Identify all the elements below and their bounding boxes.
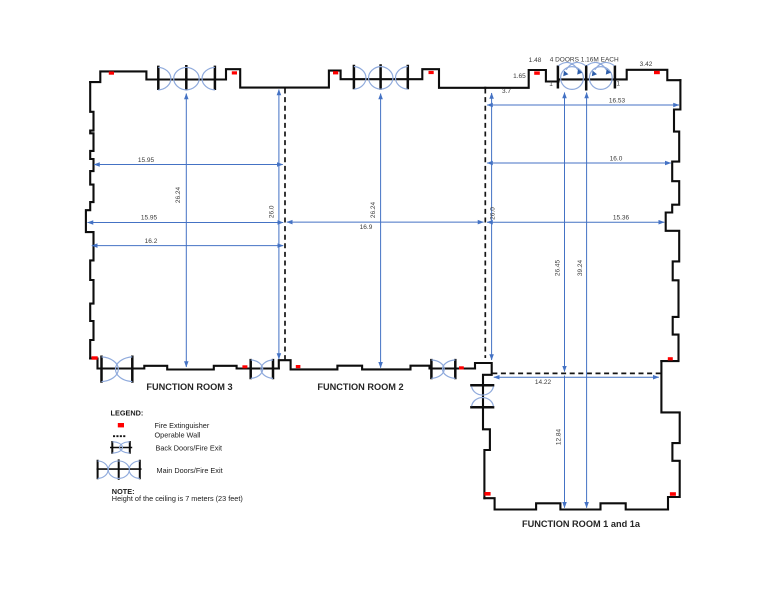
svg-text:1: 1 — [549, 81, 553, 88]
svg-text:26.0: 26.0 — [269, 205, 276, 218]
svg-text:39.24: 39.24 — [577, 259, 584, 276]
svg-text:26.24: 26.24 — [370, 201, 377, 218]
svg-text:FUNCTION ROOM 3: FUNCTION ROOM 3 — [146, 382, 232, 392]
svg-text:16.53: 16.53 — [609, 97, 626, 104]
svg-text:Height of the ceiling is 7 met: Height of the ceiling is 7 meters (23 fe… — [112, 494, 243, 503]
svg-text:1.65: 1.65 — [513, 73, 526, 80]
svg-text:3.7: 3.7 — [502, 88, 511, 95]
svg-text:16.0: 16.0 — [610, 155, 623, 162]
svg-text:16.9: 16.9 — [360, 224, 373, 231]
svg-text:16.2: 16.2 — [145, 238, 158, 245]
svg-text:4 DOORS 1.16M EACH: 4 DOORS 1.16M EACH — [550, 56, 619, 63]
svg-text:LEGEND:: LEGEND: — [111, 408, 144, 417]
svg-text:1: 1 — [616, 81, 620, 88]
svg-text:15.95: 15.95 — [138, 157, 155, 164]
svg-text:26.45: 26.45 — [555, 259, 562, 276]
svg-text:15.95: 15.95 — [141, 215, 158, 222]
svg-text:Main Doors/Fire Exit: Main Doors/Fire Exit — [157, 466, 223, 475]
svg-text:26.24: 26.24 — [175, 186, 182, 203]
svg-text:15.36: 15.36 — [613, 214, 630, 221]
svg-text:14.22: 14.22 — [535, 379, 552, 386]
svg-text:3.42: 3.42 — [640, 61, 653, 68]
svg-text:FUNCTION ROOM 2: FUNCTION ROOM 2 — [317, 382, 403, 392]
svg-text:1.48: 1.48 — [529, 57, 542, 64]
svg-text:Fire Extinguisher: Fire Extinguisher — [155, 421, 210, 430]
svg-text:12.84: 12.84 — [556, 428, 563, 445]
svg-text:Operable Wall: Operable Wall — [155, 431, 201, 440]
svg-text:Back Doors/Fire Exit: Back Doors/Fire Exit — [156, 443, 223, 452]
svg-text:FUNCTION ROOM 1 and 1a: FUNCTION ROOM 1 and 1a — [522, 519, 641, 529]
svg-text:26.0: 26.0 — [490, 207, 497, 220]
